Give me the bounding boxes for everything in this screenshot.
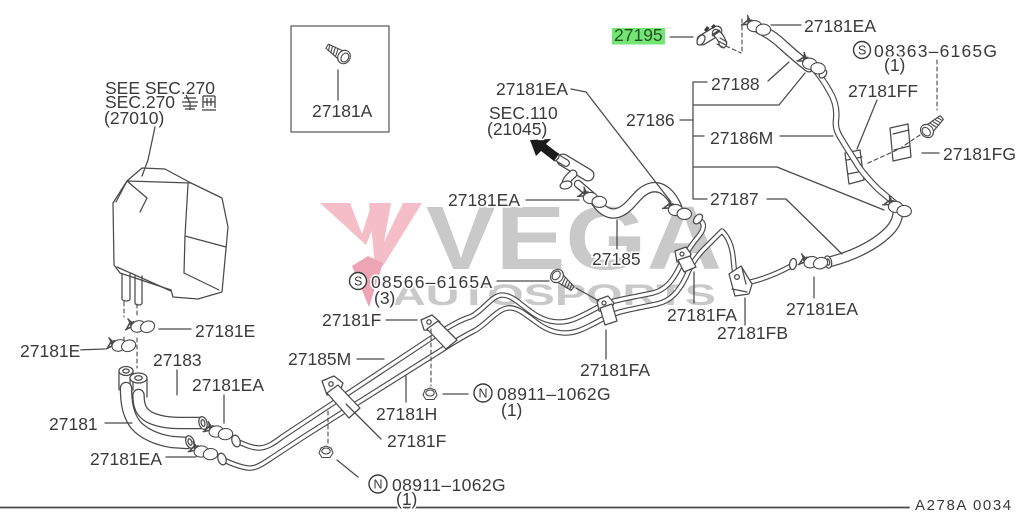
svg-text:27181H: 27181H xyxy=(376,404,437,424)
svg-text:27181FG: 27181FG xyxy=(943,144,1016,164)
svg-text:A278A 0034: A278A 0034 xyxy=(915,497,1013,512)
svg-text:27187: 27187 xyxy=(710,189,759,209)
svg-text:27181: 27181 xyxy=(49,414,98,434)
svg-text:S: S xyxy=(354,275,362,289)
svg-text:27188: 27188 xyxy=(711,74,760,94)
svg-text:27181EA: 27181EA xyxy=(448,190,520,210)
svg-text:27181EA: 27181EA xyxy=(90,449,162,469)
svg-text:N: N xyxy=(374,478,383,492)
svg-text:27181FF: 27181FF xyxy=(848,81,918,101)
svg-text:27181F: 27181F xyxy=(322,310,381,330)
svg-text:27181FA: 27181FA xyxy=(667,305,737,325)
svg-text:27181E: 27181E xyxy=(20,341,80,361)
svg-text:27181E: 27181E xyxy=(195,321,255,341)
svg-text:27181EA: 27181EA xyxy=(786,299,858,319)
svg-text:27185M: 27185M xyxy=(288,349,351,369)
svg-text:27186: 27186 xyxy=(626,110,675,130)
svg-text:27183: 27183 xyxy=(153,350,202,370)
svg-text:27186M: 27186M xyxy=(710,128,773,148)
svg-text:(1): (1) xyxy=(884,55,905,75)
svg-text:(21045): (21045) xyxy=(487,119,547,139)
svg-text:27181F: 27181F xyxy=(387,431,446,451)
svg-text:(1): (1) xyxy=(501,400,522,420)
svg-text:(1): (1) xyxy=(396,489,417,509)
svg-text:27185: 27185 xyxy=(592,249,641,269)
svg-text:27181EA: 27181EA xyxy=(192,375,264,395)
svg-text:(27010): (27010) xyxy=(104,108,164,128)
svg-text:27181FA: 27181FA xyxy=(580,360,650,380)
svg-text:27195: 27195 xyxy=(614,25,663,45)
svg-text:S: S xyxy=(858,44,866,58)
svg-text:27181EA: 27181EA xyxy=(496,79,568,99)
svg-text:N: N xyxy=(479,387,488,401)
svg-text:27181EA: 27181EA xyxy=(804,16,876,36)
svg-text:27181A: 27181A xyxy=(312,101,373,121)
svg-text:27181FB: 27181FB xyxy=(717,323,788,343)
svg-text:(3): (3) xyxy=(374,288,395,308)
